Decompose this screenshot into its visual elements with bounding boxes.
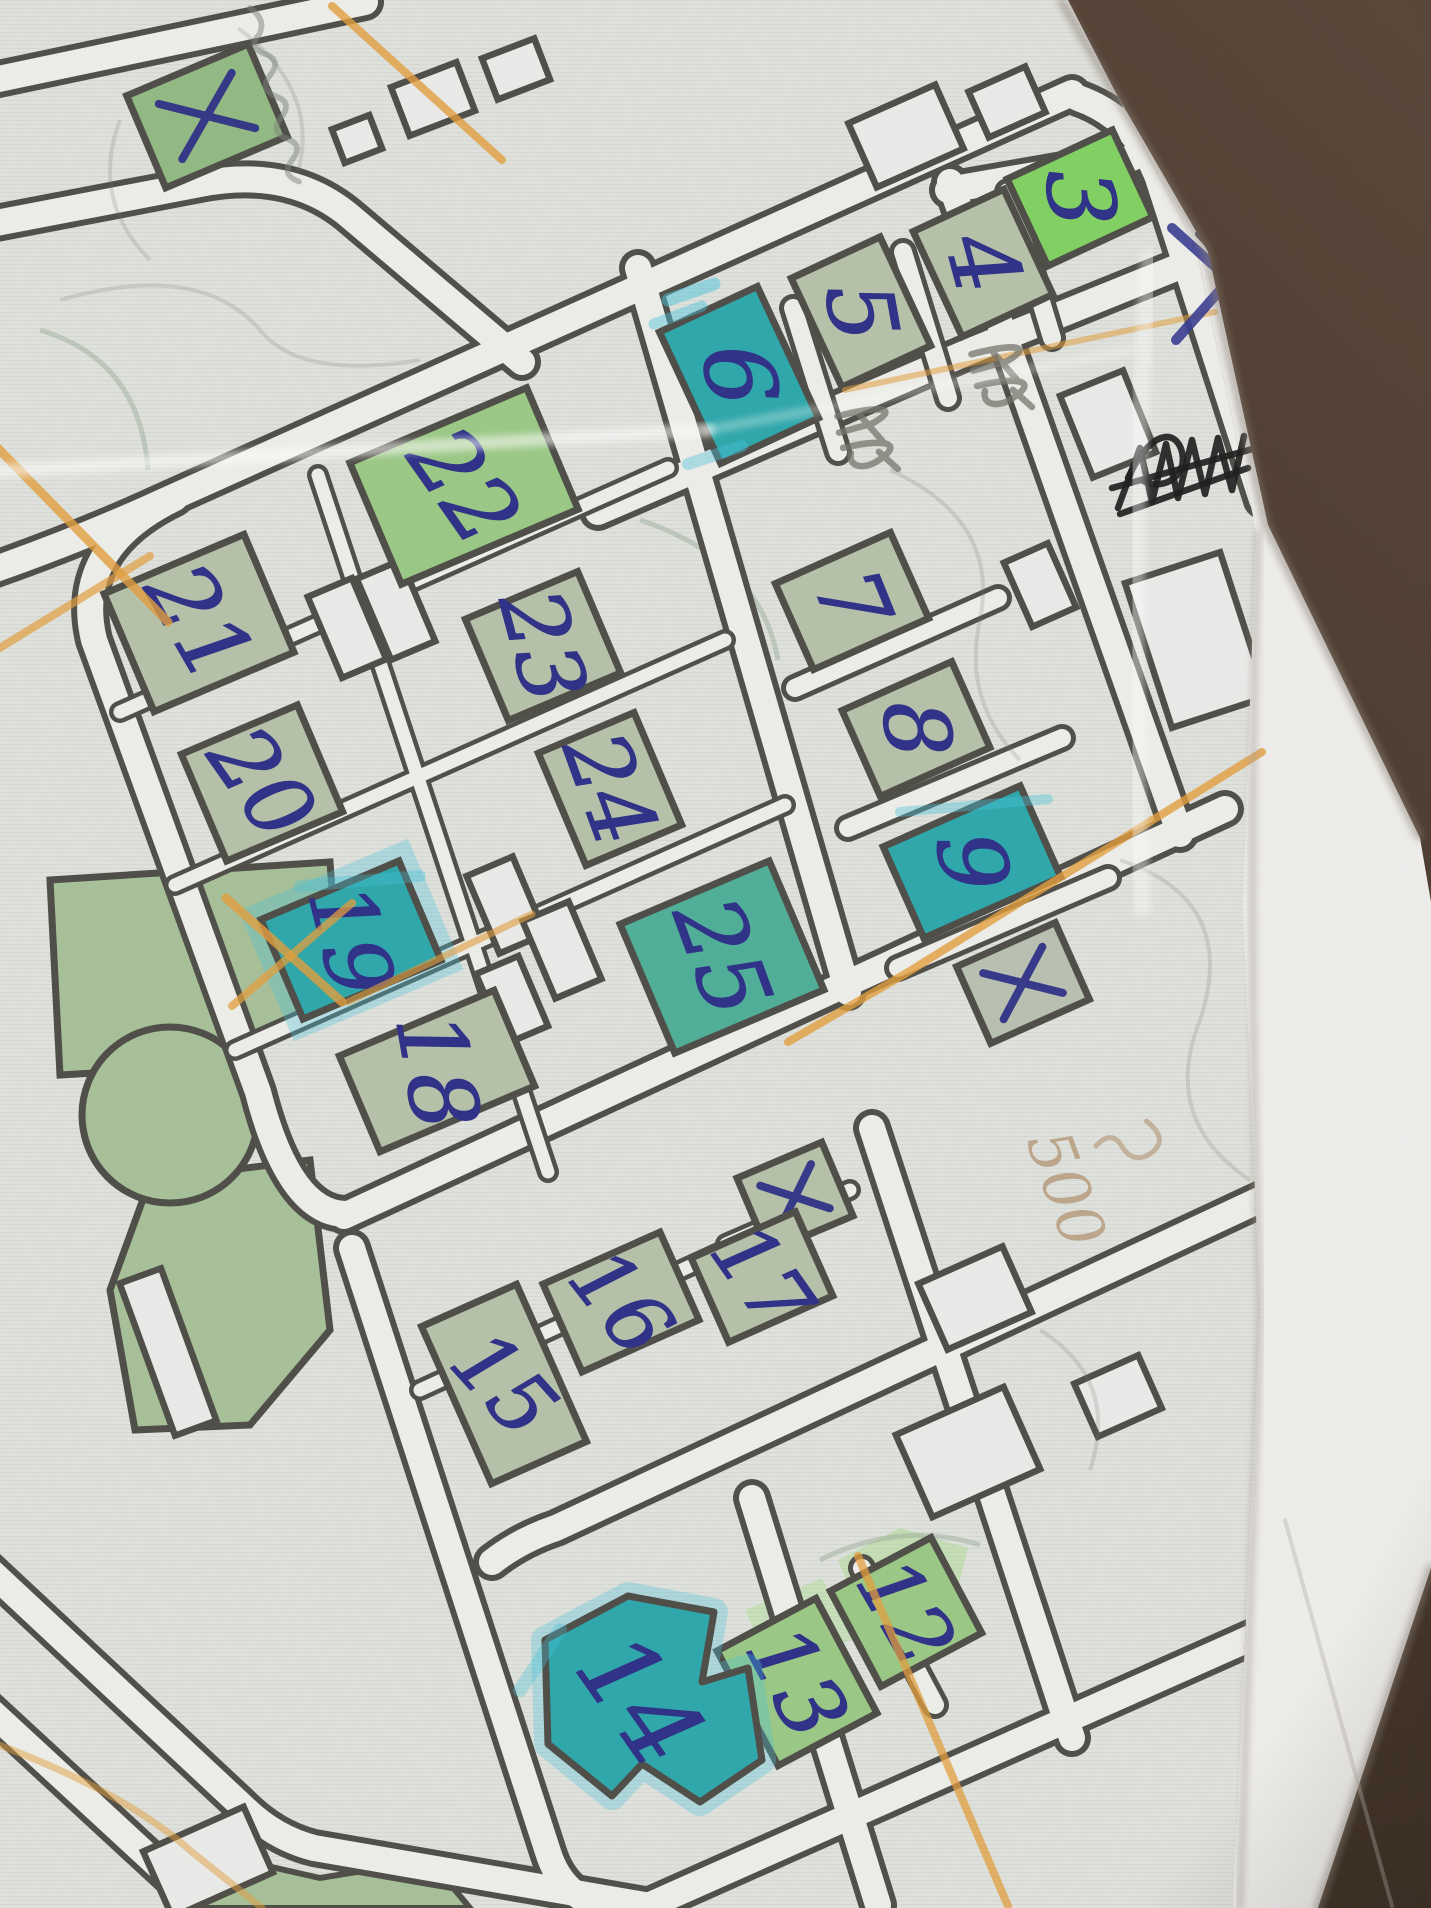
photo-of-annotated-paper-map: 34567892221232024192518171615121314500 — [0, 0, 1431, 1908]
map-photo-canvas: 34567892221232024192518171615121314500 — [0, 0, 1431, 1908]
photo-vignette — [0, 0, 1431, 1908]
